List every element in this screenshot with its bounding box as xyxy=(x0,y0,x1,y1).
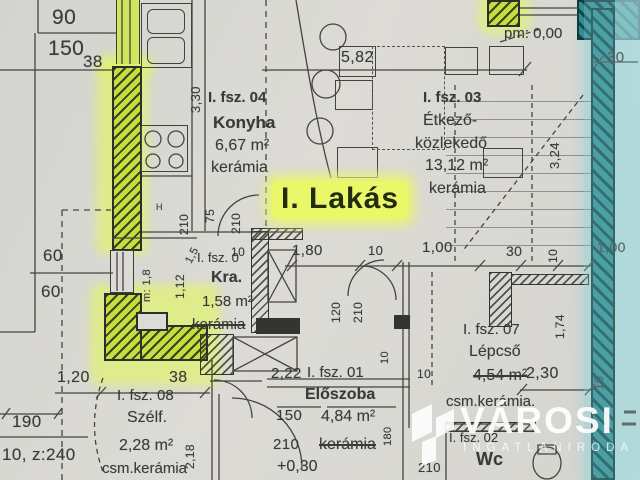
table-square xyxy=(337,147,378,178)
wall-pier xyxy=(256,318,300,334)
room-floor-kamra: kerámia xyxy=(192,316,245,333)
room-floor-etkezo: kerámia xyxy=(429,180,486,198)
room-id-lepcso: I. fsz. 07 xyxy=(463,321,520,338)
table-square xyxy=(489,46,524,75)
varosi-logo-icon xyxy=(406,398,464,468)
stove xyxy=(141,125,188,172)
room-area-eloszoba: 4,84 m² xyxy=(321,408,375,426)
table-square xyxy=(445,47,478,75)
level-mark: pm: 0,00 xyxy=(504,25,562,42)
room-floor-szelfogo: csm.kerámia xyxy=(102,460,187,477)
room-area-konyha: 6,67 m² xyxy=(215,137,269,155)
room-level-eloszoba: +0,30 xyxy=(277,458,317,476)
sink-basin xyxy=(147,9,185,34)
floorplan-canvas: I. fsz. 04 Konyha 6,67 m² kerámia I. fsz… xyxy=(0,0,640,480)
room-area-etkezo: 13,12 m² xyxy=(425,157,488,175)
room-area-kamra: 1,58 m² xyxy=(202,293,253,310)
room-name-konyha: Konyha xyxy=(213,113,275,133)
sink-basin xyxy=(147,37,185,64)
room-floor-eloszoba: kerámia xyxy=(319,436,376,454)
table-square xyxy=(483,148,523,178)
room-id-etkezo: I. fsz. 03 xyxy=(423,89,481,106)
table-square xyxy=(335,80,373,110)
room-name-etkezo-2: közlekedő xyxy=(415,135,487,153)
room-name-eloszoba: Előszoba xyxy=(305,386,375,404)
room-area-szelfogo: 2,28 m² xyxy=(119,437,173,455)
fixture-h-mark: H xyxy=(156,202,163,212)
room-name-kamra: Kra. xyxy=(211,269,242,287)
room-name-etkezo-1: Étkező- xyxy=(423,112,477,130)
apartment-highlight-label: I. Lakás xyxy=(272,181,408,219)
table-square xyxy=(339,46,376,77)
watermark-subtitle: INGATLANIRODA xyxy=(463,442,634,454)
room-id-kamra: I. fsz. 0 xyxy=(197,250,239,265)
room-floor-konyha: kerámia xyxy=(211,159,268,177)
wall-pier xyxy=(394,315,410,329)
room-id-eloszoba: I. fsz. 01 xyxy=(307,364,364,381)
room-name-lepcso: Lépcső xyxy=(469,343,521,361)
watermark-brand: VÁROSI xyxy=(460,402,614,439)
room-area-lepcso: 4,54 m² xyxy=(473,367,527,385)
room-id-szelfogo: I. fsz. 08 xyxy=(117,387,174,404)
room-name-szelfogo: Szélf. xyxy=(127,409,167,427)
room-id-konyha: I. fsz. 04 xyxy=(208,89,266,106)
